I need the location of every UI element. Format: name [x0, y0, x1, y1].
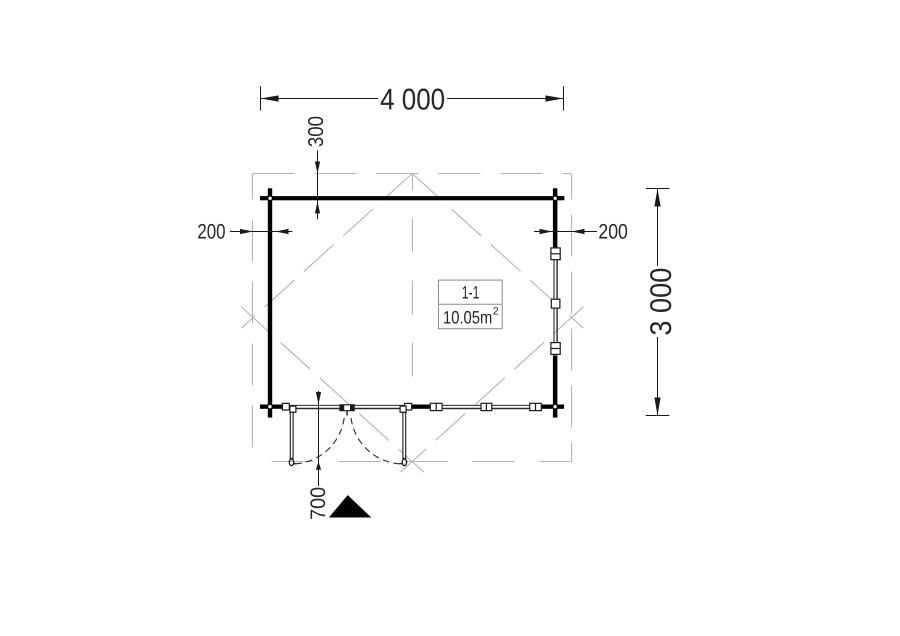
- svg-text:200: 200: [598, 221, 628, 244]
- svg-text:4 000: 4 000: [380, 83, 445, 116]
- svg-text:3 000: 3 000: [645, 268, 678, 336]
- svg-text:200: 200: [197, 221, 225, 244]
- svg-text:700: 700: [307, 487, 330, 520]
- svg-text:10.05m: 10.05m: [443, 308, 492, 328]
- svg-text:300: 300: [304, 116, 328, 147]
- svg-text:1-1: 1-1: [462, 282, 480, 302]
- svg-text:2: 2: [493, 306, 499, 318]
